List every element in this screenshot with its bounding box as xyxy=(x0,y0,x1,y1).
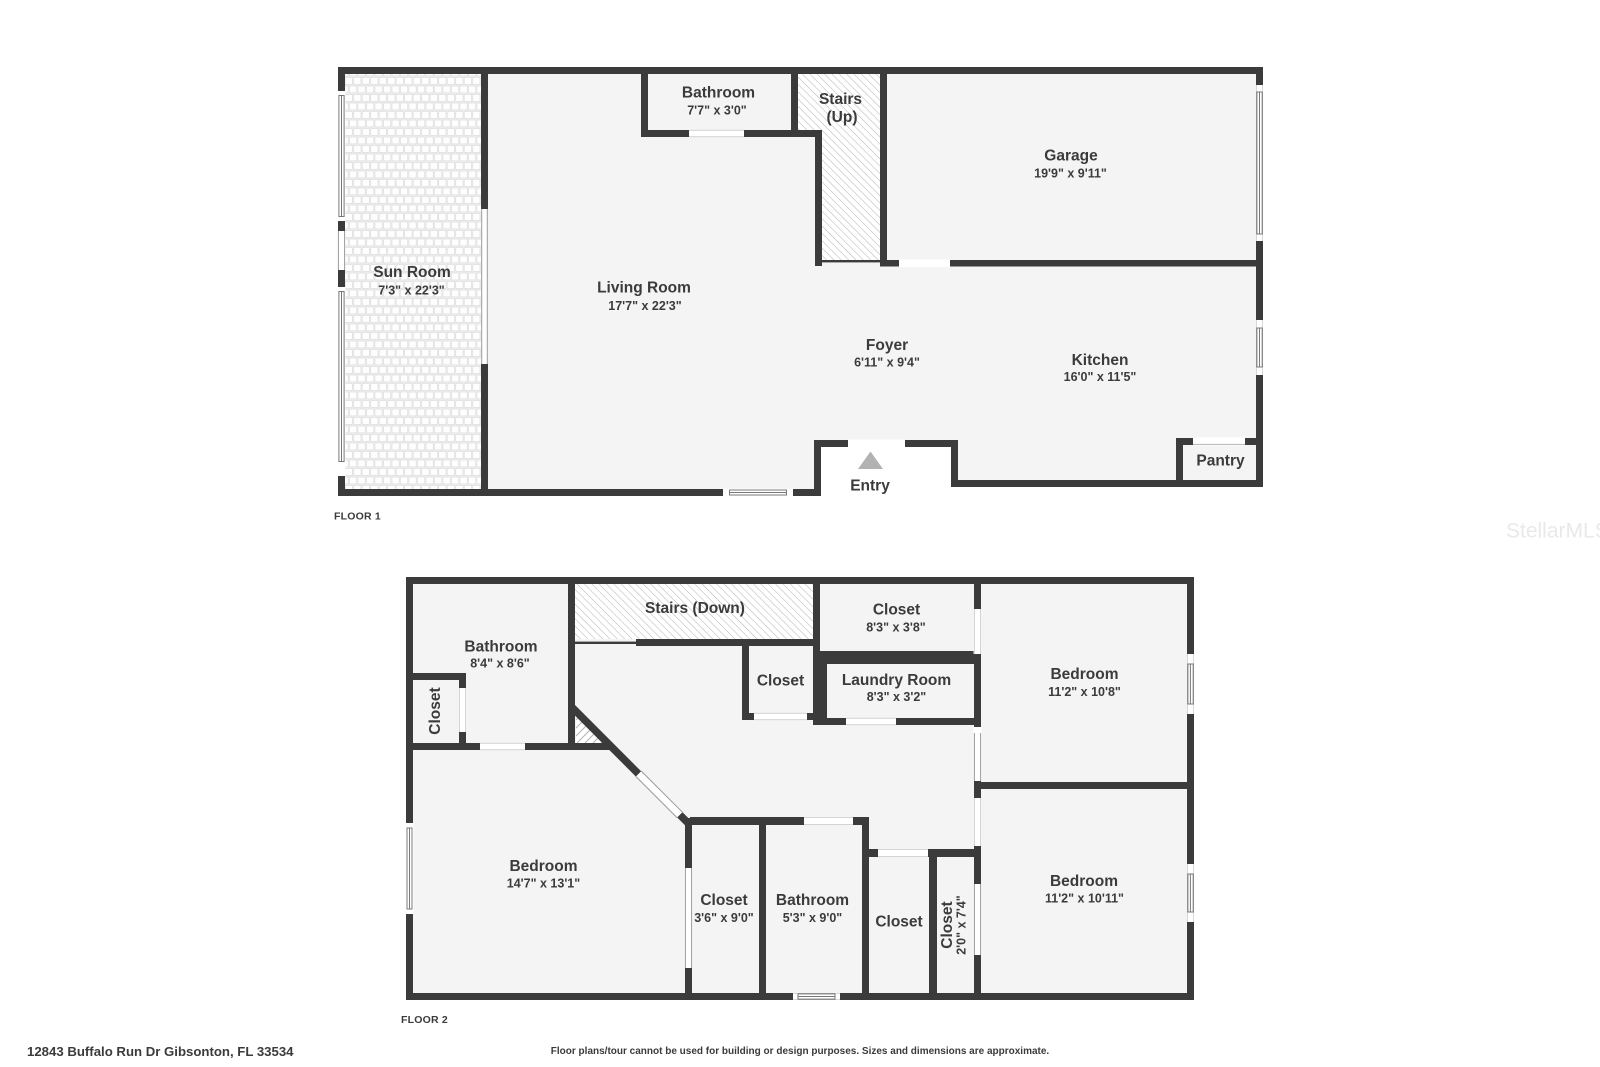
svg-text:Closet: Closet xyxy=(873,602,920,619)
svg-text:17'7" x 22'3": 17'7" x 22'3" xyxy=(608,299,681,313)
svg-text:14'7" x 13'1": 14'7" x 13'1" xyxy=(507,877,580,891)
svg-text:11'2" x 10'8": 11'2" x 10'8" xyxy=(1048,685,1121,699)
svg-text:Kitchen: Kitchen xyxy=(1072,352,1129,369)
svg-text:12843 Buffalo Run Dr Gibsonton: 12843 Buffalo Run Dr Gibsonton, FL 33534 xyxy=(27,1044,294,1059)
svg-text:7'3" x 22'3": 7'3" x 22'3" xyxy=(378,284,445,298)
svg-text:Entry: Entry xyxy=(850,478,890,495)
svg-text:Floor plans/tour cannot be use: Floor plans/tour cannot be used for buil… xyxy=(551,1046,1050,1057)
svg-text:Bedroom: Bedroom xyxy=(1050,666,1118,683)
svg-text:Sun Room: Sun Room xyxy=(373,264,451,281)
svg-text:8'3" x 3'2": 8'3" x 3'2" xyxy=(867,690,927,704)
svg-text:FLOOR 1: FLOOR 1 xyxy=(334,511,381,523)
svg-text:3'6" x 9'0": 3'6" x 9'0" xyxy=(694,911,754,925)
svg-text:Garage: Garage xyxy=(1044,148,1098,165)
svg-text:Laundry Room: Laundry Room xyxy=(842,672,951,689)
svg-text:5'3" x 9'0": 5'3" x 9'0" xyxy=(783,911,843,925)
svg-text:(Up): (Up) xyxy=(827,109,858,126)
svg-text:Living Room: Living Room xyxy=(597,280,691,297)
svg-text:Closet: Closet xyxy=(427,687,444,734)
svg-text:19'9" x 9'11": 19'9" x 9'11" xyxy=(1034,167,1107,181)
svg-text:Bedroom: Bedroom xyxy=(1050,873,1118,890)
svg-text:2'0" x 7'4": 2'0" x 7'4" xyxy=(955,895,969,955)
svg-text:Bathroom: Bathroom xyxy=(682,85,755,102)
svg-text:StellarMLS: StellarMLS xyxy=(1506,520,1600,543)
svg-text:Closet: Closet xyxy=(757,673,804,690)
svg-text:Foyer: Foyer xyxy=(866,337,908,354)
svg-text:FLOOR 2: FLOOR 2 xyxy=(401,1014,448,1026)
svg-text:Stairs: Stairs xyxy=(819,91,862,108)
svg-text:11'2" x 10'11": 11'2" x 10'11" xyxy=(1045,892,1124,906)
svg-text:7'7" x 3'0": 7'7" x 3'0" xyxy=(687,104,747,118)
svg-text:Closet: Closet xyxy=(939,901,956,948)
svg-text:Stairs (Down): Stairs (Down) xyxy=(645,600,745,617)
svg-text:Bathroom: Bathroom xyxy=(776,892,849,909)
svg-text:6'11" x 9'4": 6'11" x 9'4" xyxy=(854,356,920,370)
svg-text:16'0" x 11'5": 16'0" x 11'5" xyxy=(1064,370,1137,384)
svg-text:8'4" x 8'6": 8'4" x 8'6" xyxy=(470,657,530,671)
svg-text:Closet: Closet xyxy=(875,914,922,931)
svg-text:8'3" x 3'8": 8'3" x 3'8" xyxy=(866,621,926,635)
svg-text:Closet: Closet xyxy=(700,892,747,909)
svg-text:Pantry: Pantry xyxy=(1196,453,1245,470)
svg-text:Bathroom: Bathroom xyxy=(464,639,537,656)
svg-text:Bedroom: Bedroom xyxy=(509,858,577,875)
